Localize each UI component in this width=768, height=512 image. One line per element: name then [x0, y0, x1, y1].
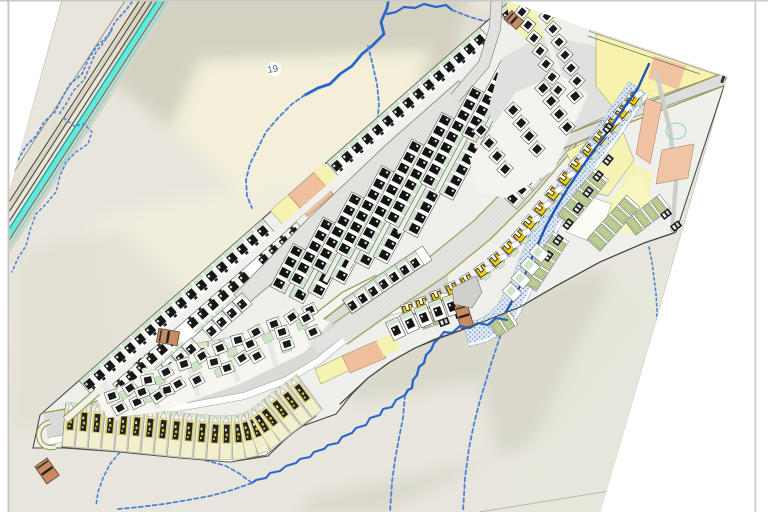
svg-text:19: 19 [267, 63, 279, 76]
